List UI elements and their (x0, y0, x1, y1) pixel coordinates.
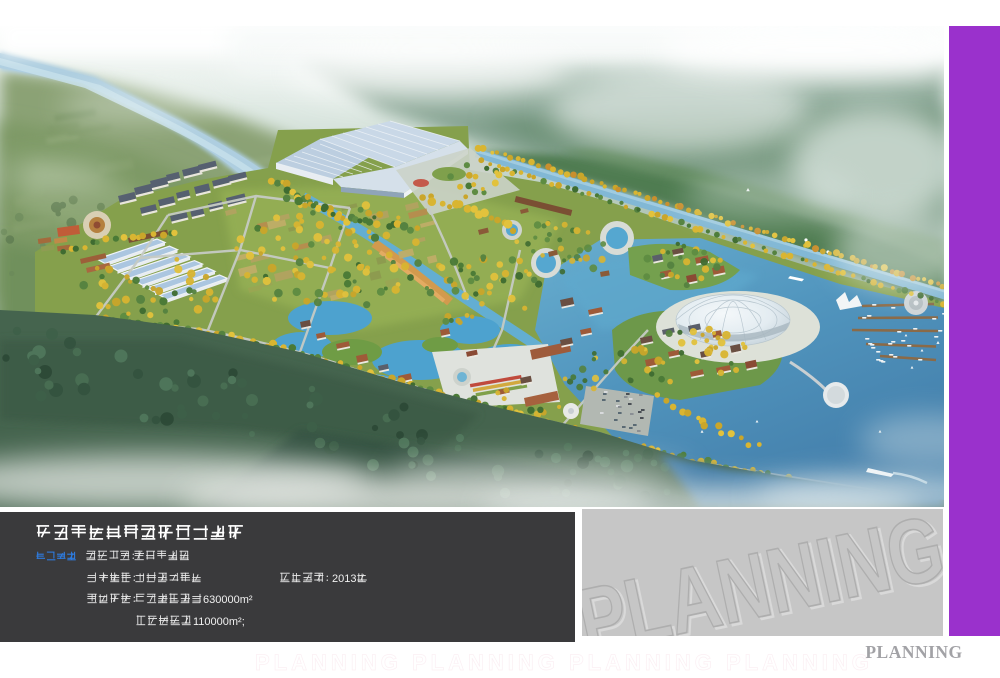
svg-text:PLANNING: PLANNING (865, 642, 962, 662)
svg-text:630000m²: 630000m² (203, 594, 253, 606)
svg-text:PLANNING PLANNING PLANNING PLA: PLANNING PLANNING PLANNING PLANNING (255, 650, 873, 675)
svg-text:2013: 2013 (332, 573, 356, 585)
svg-text:110000m²;: 110000m²; (193, 616, 245, 628)
